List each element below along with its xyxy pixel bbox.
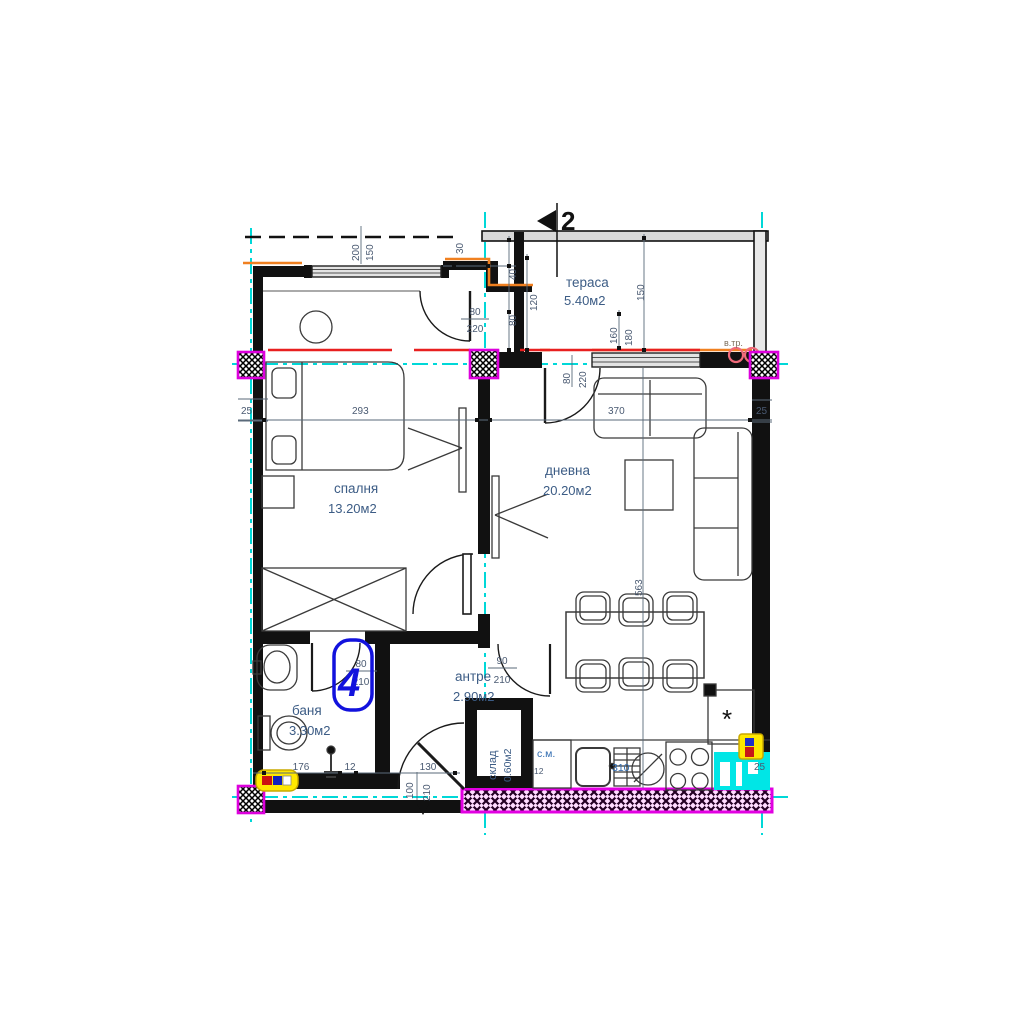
storage-room [465,698,533,788]
bottom-wall-lower-band [251,800,470,813]
living-name: дневна [545,463,590,478]
chair [619,658,653,690]
vent-pipe-label: в.тр. [724,338,743,348]
bedroom-top-wall-left [253,266,310,277]
column-icon [238,352,264,378]
svg-text:210: 210 [494,675,511,686]
wardrobe [262,568,406,631]
dining-chairs [576,592,697,692]
dim-wall-bottom-right: 25 [754,762,766,773]
column-icon [750,352,778,378]
revision-number: 4 [337,661,360,705]
dim-wall-left: 25 [241,406,253,417]
ceiling-light-icon [300,311,332,343]
win-living-w: 160 [609,327,620,344]
middle-wall-lower [478,614,490,648]
svg-text:210: 210 [422,784,433,801]
kitchen [533,740,770,790]
terrace-name: тераса [566,275,609,290]
dim-wall-right: 25 [756,406,768,417]
dim-living-length: 563 [634,579,645,596]
bedroom-furniture [262,311,466,631]
tv-bedroom [408,408,466,492]
bed [266,362,404,470]
chair [576,592,610,624]
dim-120: 120 [529,294,540,311]
kitchen-sink [576,748,615,786]
terrace-top-wall [482,231,768,241]
stove [666,742,712,790]
bedroom-area: 13.20м2 [328,501,377,516]
win-living-h: 180 [624,329,635,346]
dim-30: 30 [455,242,466,254]
living-window [592,353,700,367]
door-label-entrance: 100 210 [405,782,433,801]
storage-name: склад [487,750,499,780]
svg-text:90: 90 [496,656,508,667]
hall-name: антре [455,669,491,684]
svg-text:80: 80 [562,372,573,384]
window-post-left [304,265,312,278]
svg-text:80: 80 [469,307,481,318]
door-bedroom-terrace [420,291,470,341]
right-wall [752,368,770,789]
floor-drain-icon [324,746,338,777]
fridge-spot-mark: * [722,704,732,734]
insulated-wall-tint [462,789,772,812]
svg-text:220: 220 [467,324,484,335]
svg-text:100: 100 [405,782,416,799]
washing-machine-label: с.м. [537,748,555,760]
bath-top-wall-right [365,631,390,644]
bedroom-name: спалня [334,481,378,496]
dim-living-width: 370 [608,406,625,417]
section-arrow-icon [537,210,556,232]
bath-name: баня [292,703,322,718]
pillow [272,436,296,464]
terrace-left-wall [514,232,524,356]
terrace-area: 5.40м2 [564,293,605,308]
chair [663,660,697,692]
door-label-living-terrace: 80 220 [562,371,589,388]
dim-bath-b: 12 [344,762,356,773]
wm-dim: 12 [534,766,544,776]
revision-marker: 4 [334,640,372,710]
chair [663,592,697,624]
counter-dim: 310 [612,762,630,774]
win-bedroom-w: 200 [351,244,362,261]
switch-panel-right [739,734,763,759]
bath-area: 3.30м2 [289,723,330,738]
dim-hall-width: 130 [420,762,437,773]
dim-150: 150 [636,284,647,301]
living-area: 20.20м2 [543,483,592,498]
door-label-hall-living: 90 210 [488,656,517,686]
win-bedroom-h: 150 [365,244,376,261]
section-number: 2 [561,206,575,236]
dim-bath-a: 176 [293,762,310,773]
door-entrance [398,723,464,789]
chair [619,594,653,626]
floor-plan-drawing: 2 [0,0,1024,1024]
svg-text:220: 220 [578,371,589,388]
middle-wall-upper [478,368,490,554]
storage-area: 0.60м2 [502,748,514,782]
corner-sofa [694,428,752,580]
doors-group [312,291,600,789]
bath-right-wall [375,644,390,773]
hall-top-wall [390,631,478,644]
nightstand [262,476,294,508]
living-furniture [492,378,754,744]
prep-circle-icon [632,753,664,785]
chair [576,660,610,692]
column-icon [470,350,498,378]
tv-living [492,476,548,558]
screenshot-canvas: 2 [0,0,1024,1024]
coffee-table [625,460,673,510]
door-bedroom [413,554,473,614]
dim-80: 80 [508,314,519,326]
terrace-right-wall [754,231,766,354]
pillow [272,368,296,398]
bath-top-wall-left [253,631,310,644]
dim-bedroom-width: 293 [352,406,369,417]
hall-area: 2.90м2 [453,689,494,704]
door-hall-living [498,644,550,696]
dim-40: 40 [508,268,519,280]
